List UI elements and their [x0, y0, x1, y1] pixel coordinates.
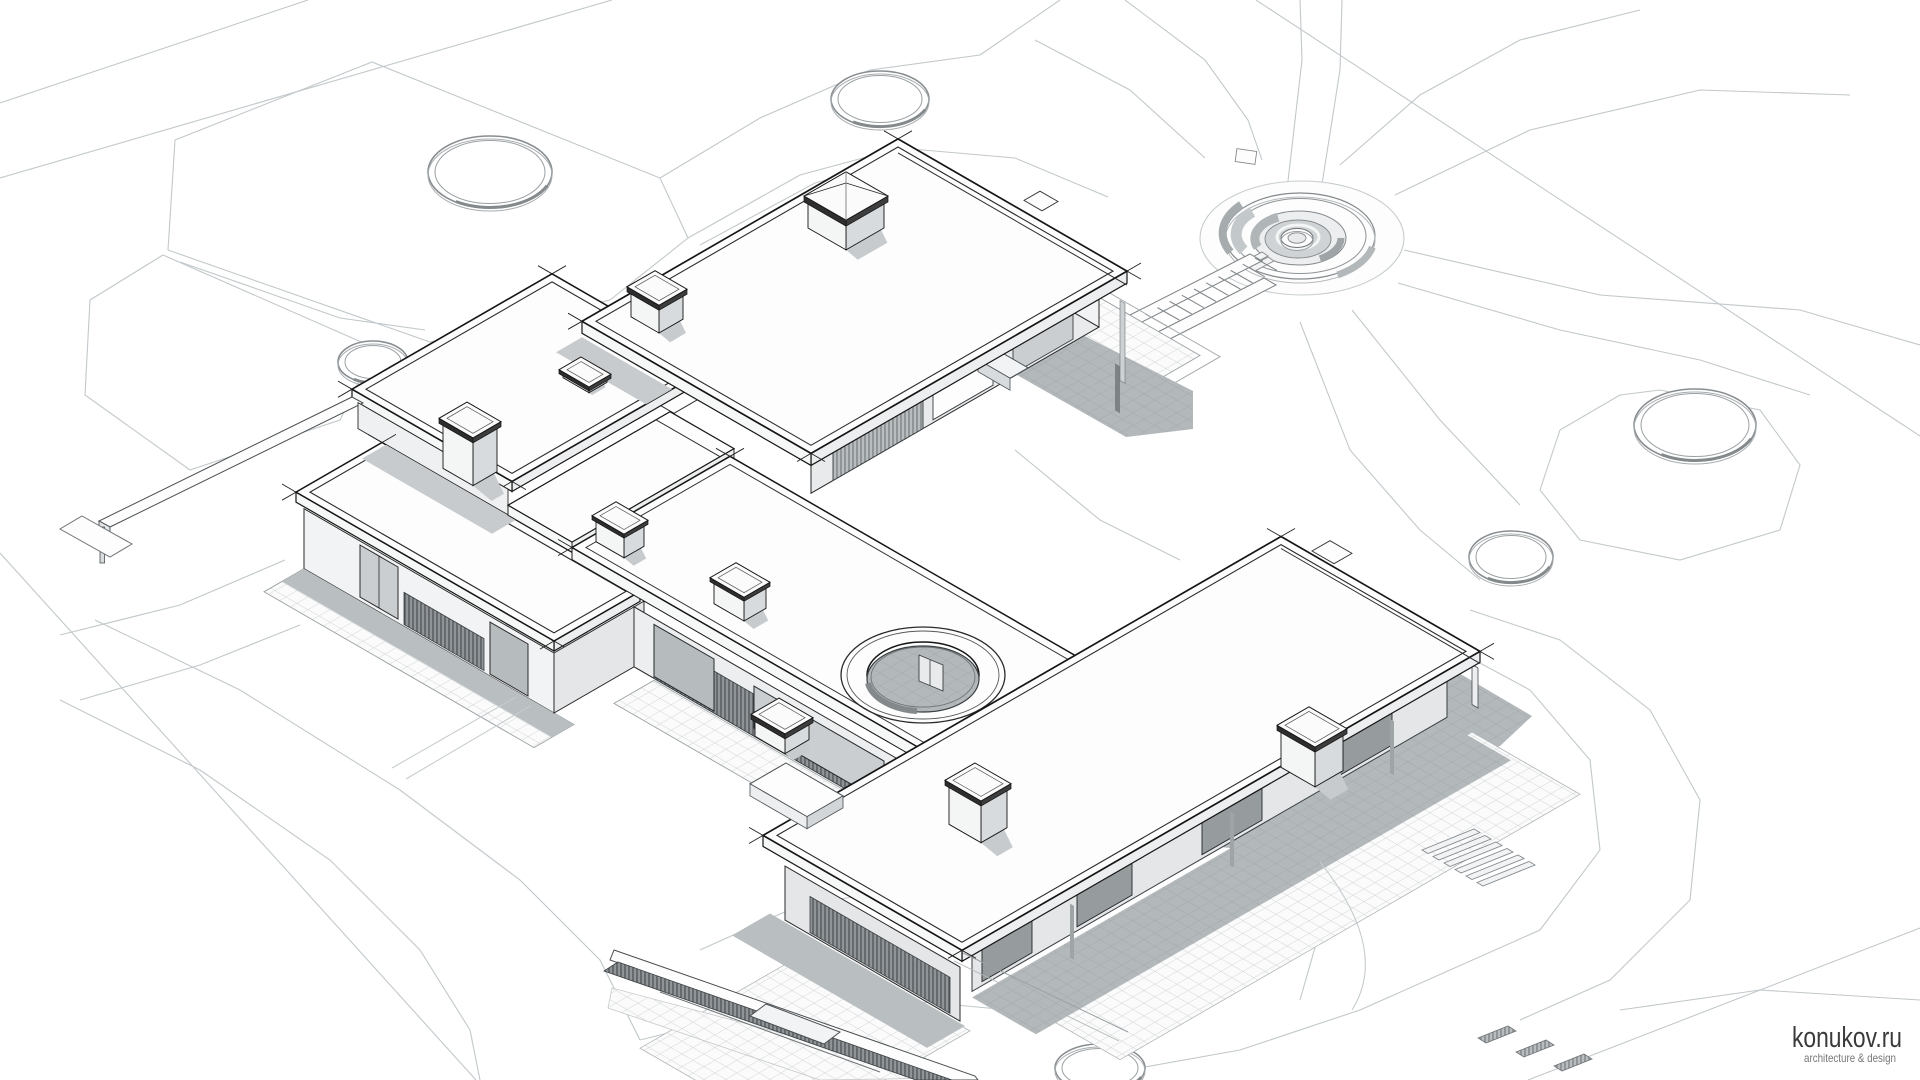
- svg-text:konukov.ru: konukov.ru: [1792, 1022, 1902, 1054]
- svg-text:architecture & design: architecture & design: [1804, 1051, 1896, 1065]
